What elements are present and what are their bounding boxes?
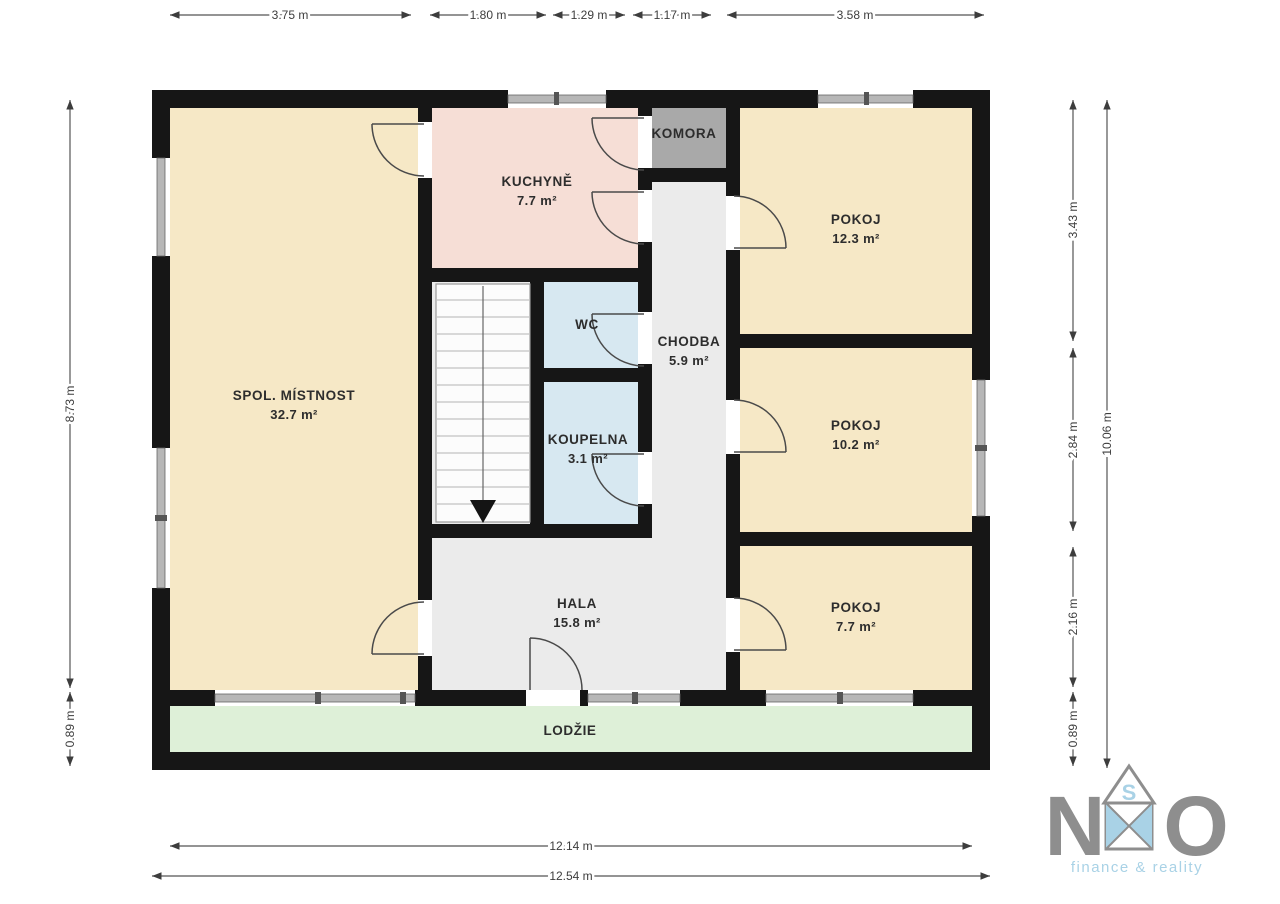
floor-plan-svg: SPOL. MÍSTNOST 32.7 m² KUCHYNĚ 7.7 m² KO… [0, 0, 1280, 904]
window-spol-left-upper [157, 158, 165, 256]
label-spol-name: SPOL. MÍSTNOST [233, 388, 356, 403]
label-pokoj12-area: 12.3 m² [832, 231, 880, 246]
dim-left-2: 0.89 m [63, 711, 77, 748]
label-pokoj7-area: 7.7 m² [836, 619, 876, 634]
label-pokoj12-name: POKOJ [831, 212, 881, 227]
label-koupelna-name: KOUPELNA [548, 432, 629, 447]
staircase [436, 284, 530, 523]
dim-right-outer: 10.06 m [1100, 412, 1114, 455]
floor-plan-page: SPOL. MÍSTNOST 32.7 m² KUCHYNĚ 7.7 m² KO… [0, 0, 1280, 904]
dim-top-1: 3.75 m [272, 8, 309, 22]
dim-bottom-1: 12.14 m [549, 839, 592, 853]
dim-right-2: 2.84 m [1066, 422, 1080, 459]
label-komora-name: KOMORA [651, 126, 716, 141]
dim-right-4: 0.89 m [1066, 711, 1080, 748]
room-kuchyne [432, 108, 638, 270]
logo-tagline: finance & reality [1071, 859, 1203, 876]
dim-right-3: 2.16 m [1066, 599, 1080, 636]
dim-right-1: 3.43 m [1066, 202, 1080, 239]
label-lodzie-name: LODŽIE [543, 723, 596, 738]
label-pokoj10-name: POKOJ [831, 418, 881, 433]
label-pokoj10-area: 10.2 m² [832, 437, 880, 452]
dim-top-2: 1.80 m [470, 8, 507, 22]
label-spol-area: 32.7 m² [270, 407, 318, 422]
label-koupelna-area: 3.1 m² [568, 451, 608, 466]
label-chodba-name: CHODBA [658, 334, 721, 349]
logo-roof-letter: S [1122, 780, 1137, 805]
logo-house-icon: S [1104, 766, 1154, 849]
label-kuchyne-area: 7.7 m² [517, 193, 557, 208]
dim-top-3: 1.29 m [571, 8, 608, 22]
label-pokoj7-name: POKOJ [831, 600, 881, 615]
dim-bottom-2: 12.54 m [549, 869, 592, 883]
brand-logo: N O S finance & reality [1045, 766, 1229, 876]
label-hala-name: HALA [557, 596, 597, 611]
label-chodba-area: 5.9 m² [669, 353, 709, 368]
label-hala-area: 15.8 m² [553, 615, 601, 630]
dim-left-1: 8.73 m [63, 386, 77, 423]
label-wc-name: WC [575, 317, 599, 332]
label-kuchyne-name: KUCHYNĚ [502, 174, 573, 189]
dim-top-5: 3.58 m [837, 8, 874, 22]
dim-top-4: 1.17 m [654, 8, 691, 22]
